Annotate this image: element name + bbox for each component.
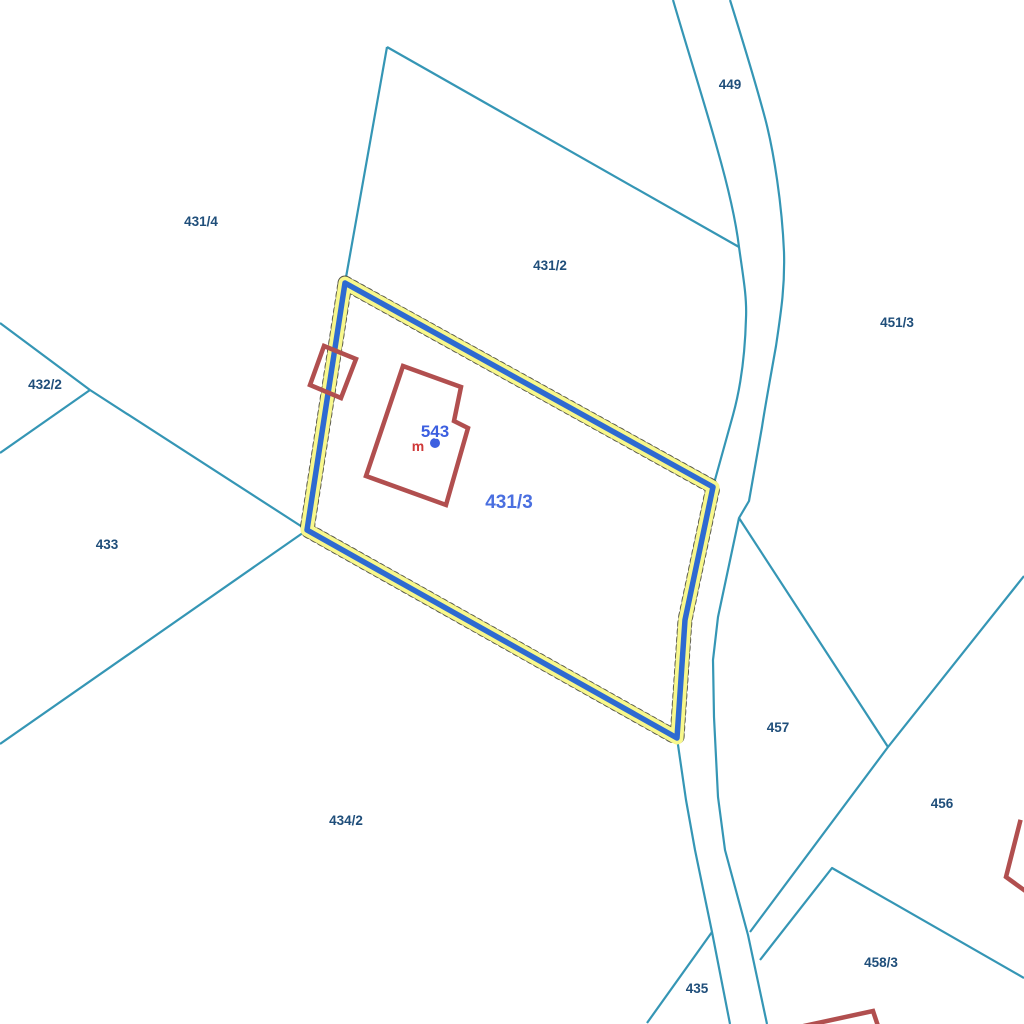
boundary-431-2-north bbox=[387, 47, 739, 247]
parcel-label-431-2: 431/2 bbox=[533, 258, 567, 273]
parcel-label-449: 449 bbox=[719, 77, 742, 92]
marker-label-m: m bbox=[412, 438, 424, 454]
boundary-433-434 bbox=[0, 530, 307, 744]
map-viewport[interactable]: 449431/4431/2451/3432/2433434/2457456458… bbox=[0, 0, 1024, 1024]
parcel-label-451-3: 451/3 bbox=[880, 315, 914, 330]
cadastral-map-canvas[interactable]: 449431/4431/2451/3432/2433434/2457456458… bbox=[0, 0, 1024, 1024]
parcel-label-431-4: 431/4 bbox=[184, 214, 218, 229]
road-right-edge bbox=[713, 0, 784, 1024]
building-main-543 bbox=[366, 366, 468, 505]
point-label-543[interactable]: 543 bbox=[421, 422, 449, 441]
parcel-label-433: 433 bbox=[96, 537, 119, 552]
boundary-457-northeast bbox=[739, 518, 888, 747]
boundary-432-2-south bbox=[0, 390, 90, 453]
parcel-label-456: 456 bbox=[931, 796, 954, 811]
parcel-labels: 449431/4431/2451/3432/2433434/2457456458… bbox=[28, 77, 954, 996]
parcel-label-432-2: 432/2 bbox=[28, 377, 62, 392]
boundary-456-west bbox=[750, 576, 1024, 932]
building-clipped-bottom bbox=[804, 1011, 878, 1024]
parcel-label-458-3: 458/3 bbox=[864, 955, 898, 970]
boundary-435-east bbox=[647, 932, 712, 1023]
building-clipped-right bbox=[1006, 822, 1024, 890]
selected-parcel-label-431-3[interactable]: 431/3 bbox=[485, 492, 533, 513]
parcel-label-435: 435 bbox=[686, 981, 709, 996]
boundary-432-2-north bbox=[0, 323, 307, 530]
parcel-label-434-2: 434/2 bbox=[329, 813, 363, 828]
parcel-label-457: 457 bbox=[767, 720, 790, 735]
